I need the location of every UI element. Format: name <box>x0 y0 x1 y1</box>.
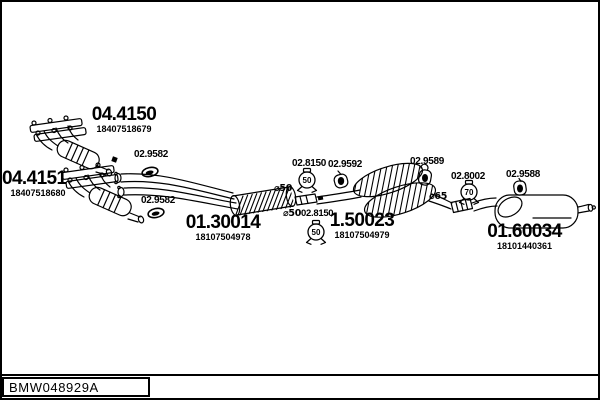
part-code: 01.30014 <box>177 214 269 232</box>
fitting-label-clamp-rear: 02.8002 <box>451 172 483 182</box>
footer-divider <box>0 374 600 376</box>
clamp-icon: 70 <box>460 181 479 205</box>
part-number: 18407518680 <box>2 188 74 199</box>
part-label-rear-muffler: 01.60034 18101440361 <box>477 223 572 252</box>
front-pipes-drawing <box>115 172 238 209</box>
diameter-label-rear: ⌀65 <box>429 192 447 202</box>
part-number: 18107504978 <box>177 232 269 243</box>
fitting-label-clamp-center: 02.8150 <box>301 208 333 219</box>
part-label-manifold-top: 04.4150 18407518679 <box>82 106 166 135</box>
part-code: 01.60034 <box>477 223 572 241</box>
part-label-manifold-bottom: 04.4151 18407518680 <box>2 170 80 199</box>
fitting-label-ring-lower: 02.9582 <box>140 196 176 206</box>
diameter-label-center: ⌀5002.8150 <box>283 209 333 219</box>
rubber-ring-icon <box>141 166 159 178</box>
part-number: 18107504979 <box>320 230 404 241</box>
fitting-label-hanger-mid: 02.9589 <box>410 157 442 167</box>
clamp-icon: 50 <box>298 169 317 193</box>
hanger-icon <box>513 179 527 196</box>
fitting-label-hanger-center: 02.9592 <box>328 160 360 170</box>
exhaust-diagram-canvas: 50 50 70 <box>0 0 600 400</box>
clamp-size-label: 70 <box>465 188 474 197</box>
drawing-code-box: BMW048929A <box>2 377 150 397</box>
flex-coupling-drawing <box>451 198 497 213</box>
diameter-value: ⌀50 <box>283 208 301 219</box>
rubber-ring-icon <box>147 207 165 219</box>
part-number: 18407518679 <box>82 124 166 135</box>
exhaust-line-art: 50 50 70 <box>0 0 600 400</box>
diameter-label-front: ⌀50 <box>274 184 292 194</box>
drawing-code-text: BMW048929A <box>4 380 99 395</box>
fitting-label-clamp-front: 02.8150 <box>292 159 322 169</box>
part-code: 04.4151 <box>2 170 80 188</box>
clamp-size-label: 50 <box>303 176 312 185</box>
hanger-icon <box>333 171 349 189</box>
tailpipe-drawing <box>578 204 595 213</box>
fitting-label-ring-upper: 02.9582 <box>133 150 169 160</box>
part-code: 04.4150 <box>82 106 166 124</box>
part-label-center-pipe: 01.30014 18107504978 <box>177 214 269 243</box>
fitting-label-hanger-rear: 02.9588 <box>506 170 538 180</box>
part-number: 18101440361 <box>477 241 572 252</box>
